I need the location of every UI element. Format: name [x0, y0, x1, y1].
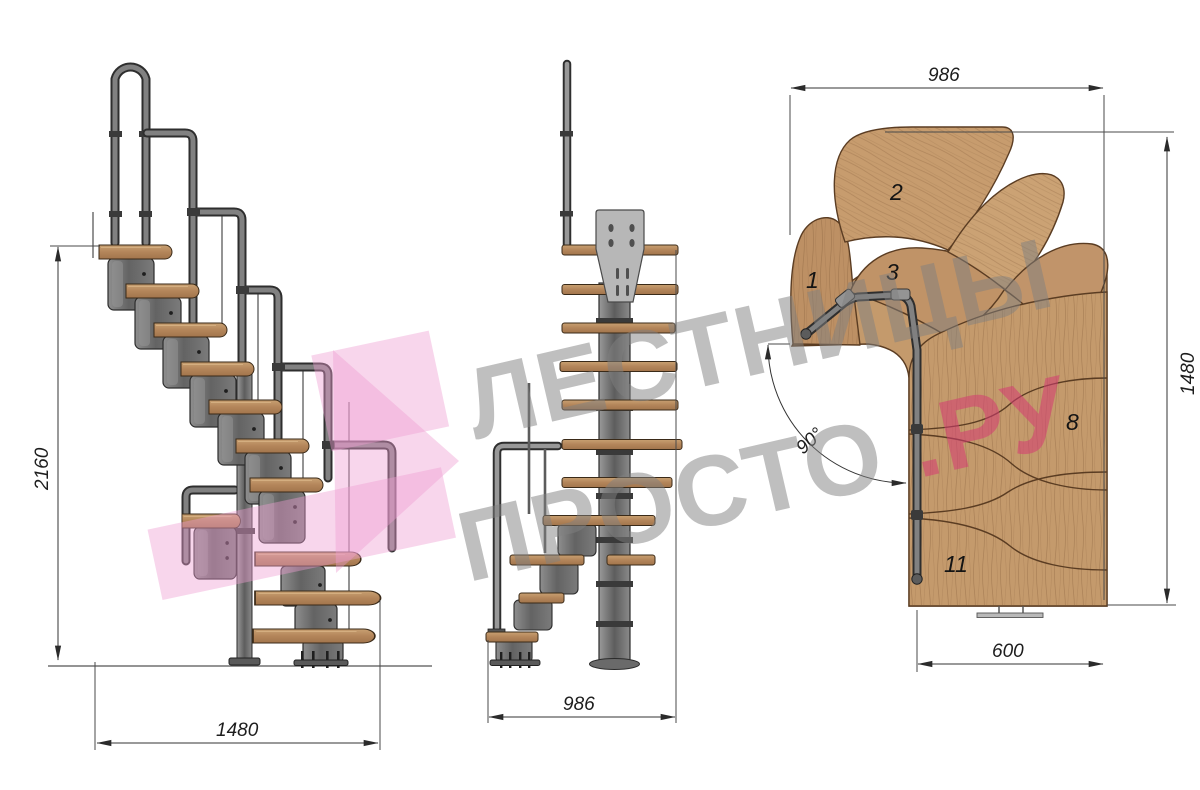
staircase-drawing: 2160 1480	[0, 0, 1200, 790]
plan-label-2: 2	[889, 179, 903, 205]
dim-side-height: 2160	[32, 447, 53, 491]
plan-label-11: 11	[944, 551, 968, 577]
dim-front-width: 986	[563, 694, 595, 715]
dim-side-width: 1480	[216, 720, 259, 741]
dim-plan-right: 1480	[1178, 352, 1199, 395]
dim-plan-top: 986	[928, 65, 960, 86]
dim-plan-bottom: 600	[992, 641, 1024, 662]
